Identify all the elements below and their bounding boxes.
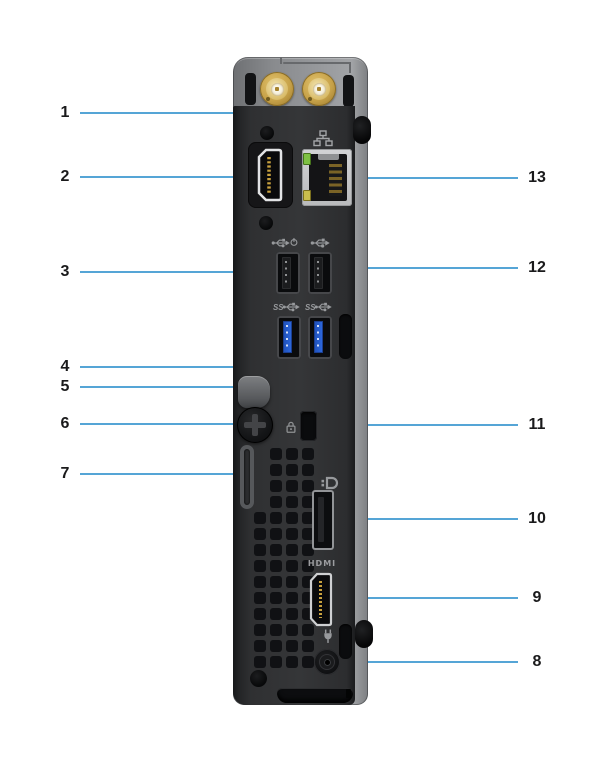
vent-hole	[254, 528, 266, 540]
callout-line-6	[80, 423, 252, 425]
callout-number-6: 6	[52, 416, 78, 432]
sma-notch	[308, 97, 312, 101]
vent-hole	[254, 512, 266, 524]
superspeed-usb-icon-left: SS	[273, 301, 300, 313]
usb-icon	[310, 237, 330, 249]
callout-line-2	[80, 176, 255, 178]
callout-number-2: 2	[52, 169, 78, 185]
callout-line-5	[80, 386, 250, 388]
vent-hole	[270, 608, 282, 620]
chassis-slot-upper	[339, 314, 352, 359]
callout-line-7	[80, 473, 246, 475]
usb2-port-smartpower	[276, 252, 300, 294]
usb3-port-right	[308, 316, 332, 359]
svg-text:SS: SS	[273, 303, 284, 312]
chassis-seam	[283, 62, 351, 64]
usb3-tongue	[283, 321, 292, 353]
power-plug-icon	[322, 628, 334, 644]
usb3-port-left	[277, 316, 301, 359]
callout-number-7: 7	[52, 466, 78, 482]
sma-center-pin	[317, 87, 321, 91]
vent-hole	[286, 496, 298, 508]
vent-hole	[302, 448, 314, 460]
vent-hole	[286, 544, 298, 556]
vent-hole	[286, 656, 298, 668]
vent-hole	[270, 464, 282, 476]
vent-hole	[254, 576, 266, 588]
screw-hole-mid	[259, 216, 273, 230]
vent-hole	[270, 480, 282, 492]
chassis-seam-corner	[349, 62, 351, 73]
vent-hole	[270, 592, 282, 604]
sma-antenna-connector-left	[260, 72, 294, 106]
chassis-seam-tick	[280, 57, 282, 64]
callout-number-9: 9	[524, 590, 550, 606]
vent-hole	[270, 640, 282, 652]
vent-hole	[270, 544, 282, 556]
callout-number-13: 13	[524, 170, 550, 186]
sma-notch	[266, 97, 270, 101]
callout-number-3: 3	[52, 264, 78, 280]
kensington-lock-slot	[300, 411, 317, 441]
vent-hole	[286, 464, 298, 476]
vent-hole	[286, 592, 298, 604]
vent-hole	[286, 640, 298, 652]
vent-hole	[286, 608, 298, 620]
vent-hole	[270, 560, 282, 572]
vent-hole	[254, 640, 266, 652]
base-cover-tab	[277, 688, 353, 703]
superspeed-usb-icon-right: SS	[305, 301, 332, 313]
displayport-port	[312, 490, 334, 550]
svg-text:SS: SS	[305, 303, 316, 312]
callout-number-11: 11	[524, 417, 550, 433]
vent-hole	[286, 560, 298, 572]
network-icon	[313, 130, 333, 147]
cable-holder	[238, 376, 270, 408]
vent-hole	[286, 512, 298, 524]
usb2-port	[308, 252, 332, 294]
vent-hole	[254, 544, 266, 556]
screw-hole-bottom	[250, 670, 267, 687]
vent-hole	[286, 448, 298, 460]
vent-hole	[286, 624, 298, 636]
vent-hole	[270, 528, 282, 540]
vent-hole	[270, 624, 282, 636]
power-connector-pin-hole	[324, 659, 331, 666]
hdmi-logo-text: HDMI	[305, 559, 339, 568]
base-cover-tab-notch	[346, 689, 351, 698]
callout-number-1: 1	[52, 105, 78, 121]
vent-hole	[270, 448, 282, 460]
usb-smartpower-icon	[271, 237, 299, 249]
power-connector	[314, 649, 340, 675]
hdmi-port	[309, 572, 333, 627]
ethernet-led-green	[303, 153, 311, 165]
displayport-opening	[318, 497, 324, 542]
vent-hole	[286, 480, 298, 492]
padlock-ring	[240, 445, 254, 509]
callout-number-10: 10	[524, 511, 550, 527]
vent-hole	[302, 464, 314, 476]
vent-hole	[302, 656, 314, 668]
vent-hole	[270, 656, 282, 668]
displayport-icon	[321, 476, 339, 490]
vent-hole	[254, 656, 266, 668]
vent-hole	[302, 640, 314, 652]
vent-hole	[254, 560, 266, 572]
callout-number-4: 4	[52, 359, 78, 375]
callout-number-8: 8	[524, 654, 550, 670]
sma-antenna-connector-right	[302, 72, 336, 106]
vent-hole	[270, 512, 282, 524]
vent-hole	[254, 608, 266, 620]
ethernet-port	[302, 149, 352, 206]
vent-hole	[270, 576, 282, 588]
ethernet-jack-tab	[318, 154, 339, 160]
rubber-foot-top	[353, 116, 371, 144]
callout-number-5: 5	[52, 379, 78, 395]
vent-hole	[254, 592, 266, 604]
top-slot-left	[245, 73, 256, 105]
ethernet-led-amber	[303, 190, 311, 201]
vent-hole	[286, 576, 298, 588]
sma-center-pin	[275, 87, 279, 91]
vent-hole	[286, 528, 298, 540]
vent-hole	[270, 496, 282, 508]
security-lock-icon	[286, 420, 296, 434]
top-slot-right	[343, 75, 354, 107]
screw-hole-top	[260, 126, 274, 140]
chassis-slot-lower	[339, 624, 352, 659]
thumbscrew	[237, 407, 273, 443]
usb3-tongue	[314, 321, 323, 353]
vent-hole	[254, 624, 266, 636]
hdmi-connector-optional	[257, 148, 283, 202]
usb-tongue	[314, 257, 323, 289]
rubber-foot-bottom	[355, 620, 373, 648]
ethernet-jack-pins	[329, 164, 342, 196]
rear-view-diagram: 1 2 3 4 5 6 7 13 12 11 10 9 8	[0, 0, 600, 766]
callout-number-12: 12	[524, 260, 550, 276]
usb-tongue	[282, 257, 291, 289]
phillips-cross	[252, 414, 258, 436]
